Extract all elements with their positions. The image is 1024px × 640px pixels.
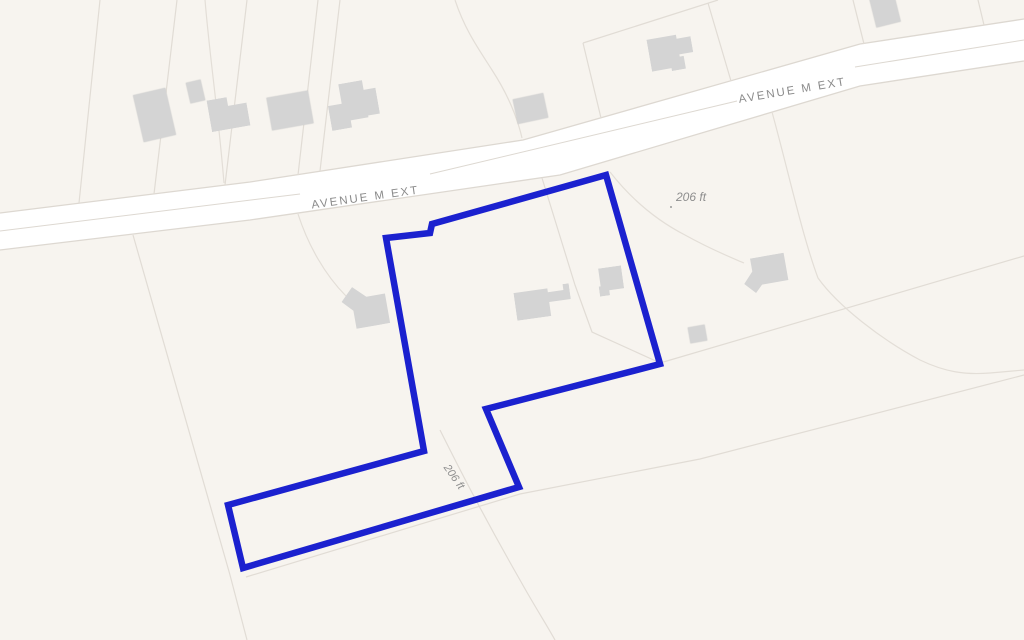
building-footprint — [266, 90, 313, 130]
property-boundary-polygon — [228, 175, 660, 568]
map-viewport[interactable]: AVENUE M EXT AVENUE M EXT 206 ft 206 ft — [0, 0, 1024, 640]
dimension-label: 206 ft — [676, 190, 706, 204]
building-footprint — [687, 325, 707, 344]
parcel-lines — [79, 0, 1024, 640]
dimension-tick — [670, 206, 672, 208]
